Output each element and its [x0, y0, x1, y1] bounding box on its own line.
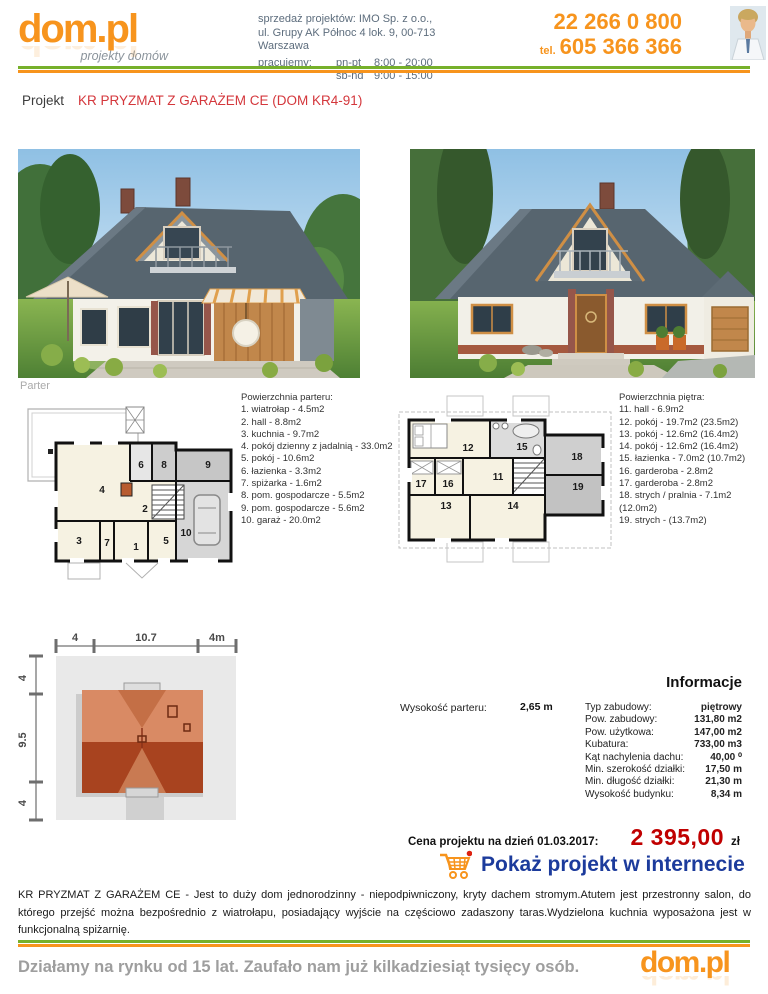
footer-logo-reflection: dom.pl — [640, 976, 752, 986]
phone-mobile-line: tel.605 366 366 — [510, 34, 682, 64]
room-list-item: 10. garaż - 20.0m2 — [241, 515, 393, 527]
room-list-item: 3. kuchnia - 9.7m2 — [241, 429, 393, 441]
info-row: Min. długość działki:21,30 m — [585, 776, 742, 788]
dim-label: 4 — [72, 632, 79, 644]
room-number: 2 — [142, 504, 148, 515]
room-number: 14 — [507, 501, 519, 512]
room-list-item: 6. łazienka - 3.3m2 — [241, 466, 393, 478]
consultant-photo — [730, 6, 766, 60]
footer-slogan: Działamy na rynku od 15 lat. Zaufało nam… — [18, 958, 579, 977]
room-number: 16 — [442, 479, 454, 490]
header-logo[interactable]: dom.pl dom.pl projekty domów — [18, 12, 168, 63]
photo-house-garden-view — [18, 149, 360, 378]
room-number: 10 — [180, 528, 192, 539]
info-row: Min. szerokość działki:17,50 m — [585, 764, 742, 776]
site-plan: 4 10.7 4m 4 9.5 4 — [18, 628, 253, 828]
price-label: Cena projektu na dzień 01.03.2017: — [408, 836, 598, 848]
project-label: Projekt — [22, 93, 64, 108]
info-row: Kubatura:733,00 m3 — [585, 739, 742, 751]
room-number: 5 — [163, 536, 169, 547]
room-list-item: 17. garderoba - 2.8m2 — [619, 478, 767, 490]
room-number: 11 — [493, 472, 504, 483]
room-list-item: 7. spiżarka - 1.6m2 — [241, 478, 393, 490]
room-number: 7 — [104, 538, 110, 549]
room-list-item: 16. garderoba - 2.8m2 — [619, 466, 767, 478]
footer-logo-text: dom.pl — [640, 950, 752, 976]
dim-label: 4 — [18, 674, 29, 681]
tel-label: tel. — [540, 45, 556, 57]
parter-room-list: Powierzchnia parteru: 1. wiatrołap - 4.5… — [241, 392, 393, 527]
dim-label: 4m — [209, 632, 225, 644]
room-list-item: 8. pom. gospodarcze - 5.5m2 — [241, 490, 393, 502]
info-row: Wysokość budynku:8,34 m — [585, 789, 742, 801]
logo-text: dom.pl — [18, 12, 168, 46]
footer-logo[interactable]: dom.pl dom.pl — [640, 950, 752, 986]
project-description: KR PRYZMAT Z GARAŻEM CE - Jest to duży d… — [18, 887, 751, 940]
logo-reflection: dom.pl — [18, 46, 168, 58]
room-number: 6 — [138, 460, 144, 471]
dim-label: 10.7 — [135, 632, 156, 644]
room-list-item: 13. pokój - 12.6m2 (16.4m2) — [619, 429, 767, 441]
room-list-item: 15. łazienka - 7.0m2 (10.7m2) — [619, 453, 767, 465]
room-list-item: 9. pom. gospodarcze - 5.6m2 — [241, 503, 393, 515]
info-row: Pow. użytkowa:147,00 m2 — [585, 727, 742, 739]
company-line1: sprzedaż projektów: IMO Sp. z o.o., — [258, 13, 488, 27]
price-currency: zł — [731, 836, 740, 848]
room-number: 18 — [571, 452, 583, 463]
parter-list-heading: Powierzchnia parteru: — [241, 392, 393, 404]
info-row: Kąt nachylenia dachu:40,00 ⁰ — [585, 752, 742, 764]
room-number: 3 — [76, 536, 82, 547]
pietro-room-list: Powierzchnia piętra: 11. hall - 6.9m2 12… — [619, 392, 767, 527]
price-amount: 2 395,00 — [630, 824, 724, 851]
ground-height-label: Wysokość parteru: — [400, 702, 487, 714]
company-line2: ul. Grupy AK Północ 4 lok. 9, 00-713 War… — [258, 27, 488, 54]
info-heading: Informacje — [585, 674, 742, 691]
room-list-item: 11. hall - 6.9m2 — [619, 404, 767, 416]
header-phones: 22 266 0 800 tel.605 366 366 — [510, 9, 682, 64]
dim-label: 9.5 — [18, 732, 29, 747]
room-list-item: 5. pokój - 10.6m2 — [241, 453, 393, 465]
room-list-item: 12. pokój - 19.7m2 (23.5m2) — [619, 417, 767, 429]
floorplan-pietro: 11 12 13 14 15 16 17 18 19 — [395, 390, 615, 585]
project-name: KR PRYZMAT Z GARAŻEM CE (DOM KR4-91) — [78, 93, 362, 108]
show-project-link[interactable]: Pokaż projekt w internecie — [438, 850, 745, 880]
room-number: 8 — [161, 460, 167, 471]
room-list-item: 4. pokój dzienny z jadalnią - 33.0m2 — [241, 441, 393, 453]
price-row: Cena projektu na dzień 01.03.2017: 2 395… — [408, 824, 740, 851]
dim-label: 4 — [18, 799, 29, 806]
room-list-item: 19. strych - (13.7m2) — [619, 515, 767, 527]
room-list-item: 1. wiatrołap - 4.5m2 — [241, 404, 393, 416]
room-number: 1 — [133, 542, 139, 553]
room-number: 12 — [462, 443, 474, 454]
room-list-item: 18. strych / pralnia - 7.1m2 (12.0m2) — [619, 490, 767, 515]
photo-house-front-view — [410, 149, 755, 378]
room-number: 19 — [572, 482, 584, 493]
header-divider — [18, 66, 750, 73]
info-table: Typ zabudowy:piętrowy Pow. zabudowy:131,… — [585, 702, 742, 801]
floorplan-parter-caption: Parter — [20, 380, 50, 392]
room-list-item: 2. hall - 8.8m2 — [241, 417, 393, 429]
room-number: 17 — [415, 479, 427, 490]
info-row: Pow. zabudowy:131,80 m2 — [585, 714, 742, 726]
cart-icon — [438, 850, 472, 880]
room-number: 4 — [99, 485, 105, 496]
floorplan-parter: 1 2 3 4 5 6 7 8 9 10 — [18, 393, 234, 585]
room-number: 13 — [440, 501, 452, 512]
room-list-item: 14. pokój - 12.6m2 (16.4m2) — [619, 441, 767, 453]
page: dom.pl dom.pl projekty domów sprzedaż pr… — [0, 0, 768, 994]
ground-height-value: 2,65 m — [520, 701, 553, 713]
show-project-link-label: Pokaż projekt w internecie — [481, 853, 745, 877]
room-number: 9 — [205, 460, 211, 471]
info-row: Typ zabudowy:piętrowy — [585, 702, 742, 714]
phone-main: 22 266 0 800 — [510, 9, 682, 34]
pietro-list-heading: Powierzchnia piętra: — [619, 392, 767, 404]
room-number: 15 — [516, 442, 528, 453]
project-title-row: Projekt KR PRYZMAT Z GARAŻEM CE (DOM KR4… — [22, 93, 362, 108]
